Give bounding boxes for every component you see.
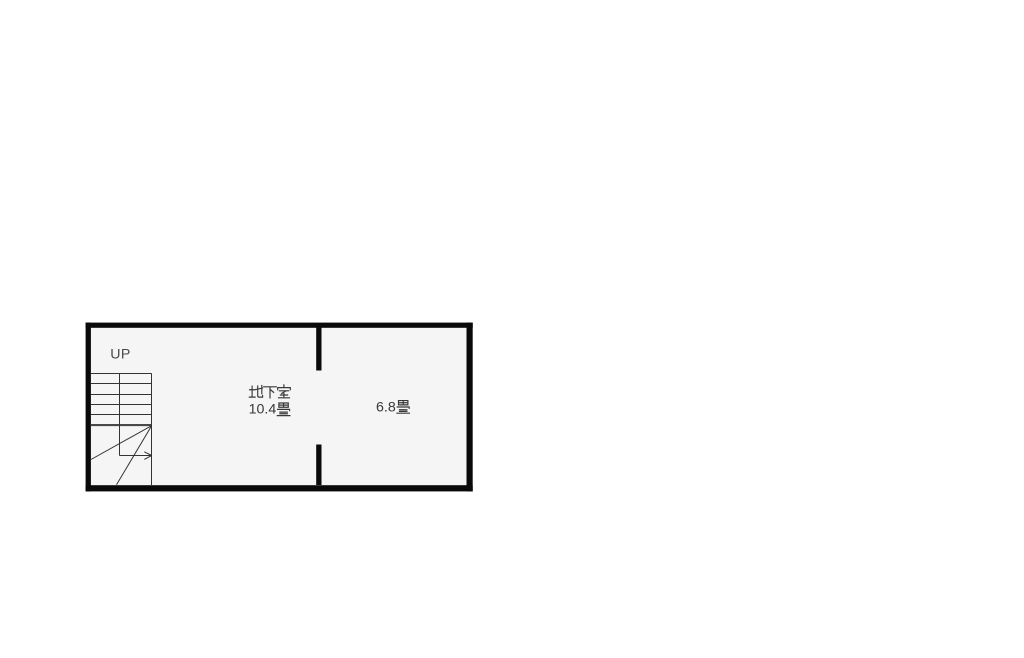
svg-text:10.4: 10.4 (249, 401, 277, 417)
svg-text:6.8: 6.8 (376, 399, 396, 415)
svg-text:UP: UP (110, 347, 131, 363)
